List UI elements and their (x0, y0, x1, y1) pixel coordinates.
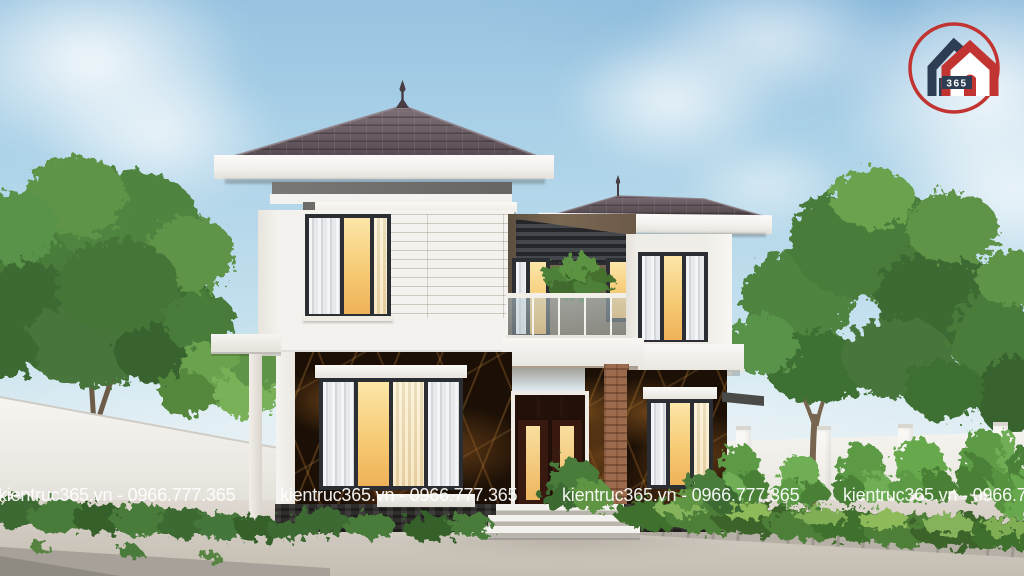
watermark-text: kientruc365.vn - 0966.777.365 (843, 485, 1024, 506)
garden-bed (614, 499, 1024, 550)
brand-logo: 365 (902, 16, 1006, 120)
watermark-text: kientruc365.vn - 0966.777.365 (562, 485, 799, 506)
watermark-text: kientruc365.vn - 0966.777.365 (280, 485, 517, 506)
logo-badge-text: 365 (946, 79, 967, 90)
watermark-text: kientruc365.vn - 0966.777.365 (0, 485, 235, 506)
architectural-rendering: kientruc365.vn - 0966.777.365 kientruc36… (0, 0, 1024, 576)
